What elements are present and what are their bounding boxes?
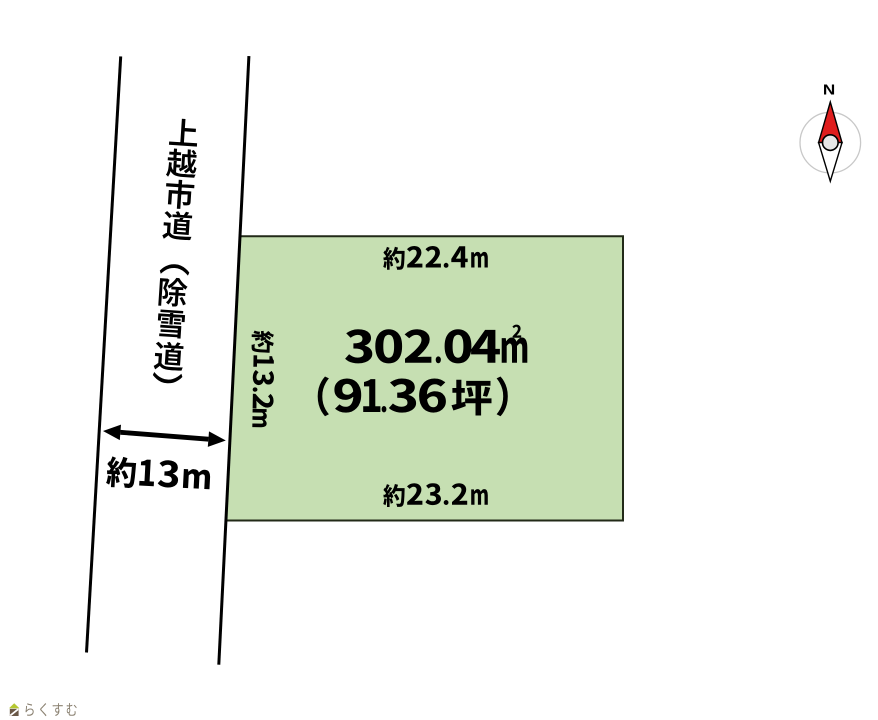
svg-text:N: N — [823, 83, 835, 99]
